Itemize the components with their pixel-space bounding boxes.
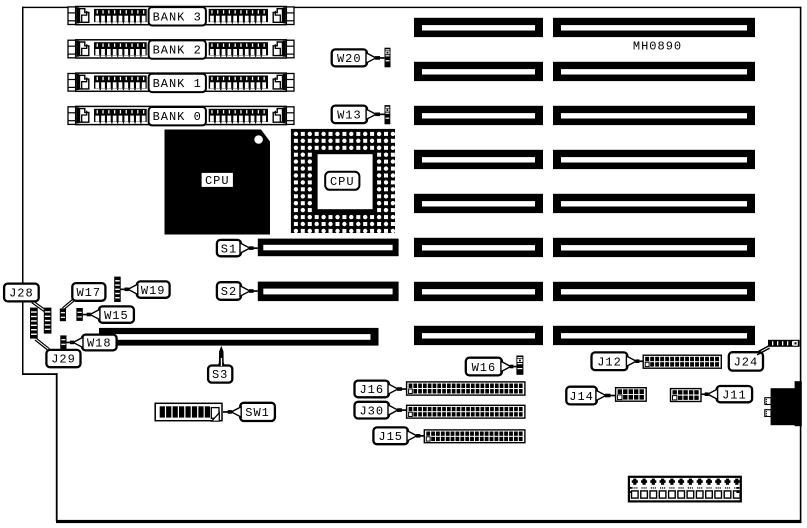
svg-text:W20: W20 (337, 52, 362, 66)
svg-text:W17: W17 (76, 286, 101, 300)
svg-text:BANK 0: BANK 0 (153, 110, 202, 124)
svg-text:BANK 2: BANK 2 (153, 44, 202, 58)
svg-text:J30: J30 (359, 404, 384, 418)
svg-text:CPU: CPU (330, 175, 355, 189)
svg-text:J11: J11 (722, 388, 747, 402)
svg-text:W16: W16 (472, 361, 497, 375)
svg-text:W15: W15 (104, 309, 129, 323)
svg-text:S1: S1 (221, 242, 237, 256)
svg-text:BANK 1: BANK 1 (153, 77, 202, 91)
svg-text:BANK 3: BANK 3 (153, 10, 202, 24)
svg-text:J24: J24 (734, 356, 759, 370)
svg-text:J15: J15 (378, 430, 403, 444)
svg-text:W13: W13 (337, 109, 362, 123)
svg-text:J29: J29 (51, 353, 76, 367)
svg-text:CPU: CPU (205, 174, 230, 188)
svg-text:J28: J28 (9, 287, 34, 301)
svg-text:MH0890: MH0890 (633, 39, 682, 53)
svg-text:W18: W18 (87, 337, 112, 351)
svg-text:S3: S3 (212, 368, 228, 382)
svg-text:J12: J12 (597, 355, 622, 369)
svg-text:SW1: SW1 (245, 406, 270, 420)
svg-text:J14: J14 (569, 390, 594, 404)
svg-text:S2: S2 (221, 285, 237, 299)
svg-text:J16: J16 (359, 383, 384, 397)
svg-text:W19: W19 (141, 284, 166, 298)
